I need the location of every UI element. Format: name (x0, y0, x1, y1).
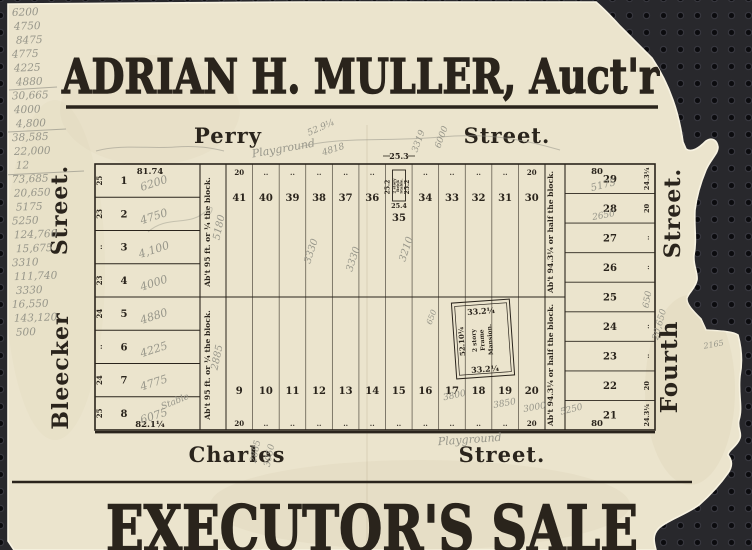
lot-width: .. (643, 265, 651, 270)
strip-label-right-upper: Ab't 94.3¼ or half the block. (546, 171, 555, 294)
strip-label-left-upper: Ab't 95 ft. or ¼ the block. (203, 177, 212, 288)
lot-number-24: 24 (603, 322, 617, 333)
frontage-tick: .. (423, 419, 428, 428)
lot-number-13: 13 (339, 386, 353, 397)
auctioneer-title: ADRIAN H. MULLER, Auct'r (61, 49, 659, 105)
lot-number-27: 27 (603, 233, 617, 244)
margin-figure: 143,120 (14, 311, 58, 325)
frontage-tick: .. (317, 419, 322, 428)
frontage-tick: .. (370, 168, 375, 177)
margin-figure: 6200 (12, 6, 39, 19)
frontage-tick: .. (476, 419, 481, 428)
frontage-tick: 20 (527, 419, 537, 428)
margin-figure: 8475 (16, 34, 43, 47)
lot-width: 24.3¼ (643, 167, 651, 190)
lot-number-10: 10 (259, 386, 273, 397)
frontage-tick: .. (343, 168, 348, 177)
lot-width: .. (643, 236, 651, 241)
pegboard-background: ADRIAN H. MULLER, Auct'r Perry Street. C… (0, 0, 752, 550)
frontage-tick: 20 (234, 168, 244, 177)
mansion-building-line2: Frame (478, 329, 486, 351)
frontage-tick: .. (290, 168, 295, 177)
lot-width: 23 (95, 209, 104, 219)
frontage-tick: .. (423, 168, 428, 177)
lot-number-25: 25 (603, 293, 617, 304)
lot-width: .. (643, 354, 651, 359)
lot-number-5: 5 (121, 309, 128, 320)
lot-number-33: 33 (445, 193, 459, 204)
lot-number-18: 18 (472, 386, 486, 397)
margin-figure: 5175 (16, 201, 43, 214)
lot-number-39: 39 (285, 193, 299, 204)
margin-figure: 22,000 (13, 145, 51, 158)
frontage-tick: .. (290, 419, 295, 428)
frontage-tick: .. (450, 419, 455, 428)
frontage-tick: .. (263, 168, 268, 177)
lot-number-38: 38 (312, 193, 326, 204)
frontage-tick: .. (263, 419, 268, 428)
lot-number-4: 4 (121, 276, 128, 287)
lot-width: 23 (95, 275, 104, 285)
lot-number-34: 34 (418, 193, 432, 204)
lot-number-15: 15 (392, 386, 406, 397)
street-perry: Perry (194, 123, 262, 148)
lot-number-19: 19 (498, 386, 512, 397)
lot-number-20: 20 (525, 386, 539, 397)
margin-figure: 124,760 (14, 228, 58, 242)
pencil-note: 2252 (706, 316, 729, 329)
lot-number-6: 6 (121, 342, 128, 353)
margin-figure: 15,675 (16, 242, 53, 255)
lot-number-37: 37 (339, 193, 353, 204)
lot-width: 25 (95, 176, 104, 186)
frontage-tick: .. (317, 168, 322, 177)
lot-number-36: 36 (365, 193, 379, 204)
frontage-tick: .. (503, 168, 508, 177)
margin-figure: 3310 (12, 256, 39, 269)
strip-label-right-lower: Ab't 94.3¼ or half the block. (546, 304, 555, 427)
lot-number-21: 21 (603, 411, 617, 422)
stable-dim-below: 25.4 (391, 202, 407, 210)
margin-figure: 12 (16, 159, 30, 171)
lot-number-16: 16 (418, 386, 432, 397)
stable-building-line3: Stable. (399, 178, 404, 194)
margin-figure: 111,740 (14, 270, 58, 284)
lot-number-14: 14 (365, 386, 379, 397)
margin-figure: 4000 (13, 103, 41, 116)
frontage-tick: 20 (527, 168, 537, 177)
frontage-tick: .. (503, 419, 508, 428)
frontage-tick: .. (396, 419, 401, 428)
lot-number-32: 32 (472, 193, 486, 204)
margin-figure: 4750 (13, 20, 41, 33)
lot-width: 24 (95, 309, 104, 319)
margin-figure: 16,550 (12, 298, 49, 311)
lot-number-11: 11 (285, 386, 299, 397)
lot-width: 20 (643, 203, 651, 213)
lot-number-9: 9 (236, 386, 243, 397)
frontage-tick: .. (370, 419, 375, 428)
lot-width: .. (643, 324, 651, 329)
street-bleecker: Bleecker (48, 312, 74, 429)
lot-width: 20 (643, 381, 651, 391)
frontage-tick: 20 (234, 419, 244, 428)
lot-number-12: 12 (312, 386, 326, 397)
margin-figure: 5250 (12, 215, 39, 228)
lot-width: .. (95, 344, 104, 349)
lot-number-1: 1 (121, 176, 128, 187)
lot-width: 25 (95, 408, 104, 418)
margin-figure: 30,665 (12, 89, 49, 102)
mansion-dim-bottom: 33.2¼ (471, 363, 500, 375)
lot-number-30: 30 (525, 193, 539, 204)
lot-number-40: 40 (259, 193, 273, 204)
lot-number-3: 3 (121, 243, 128, 254)
dim-right-bottom: 80 (591, 419, 603, 429)
lot-number-41: 41 (232, 193, 246, 204)
executors-sale-title: EXECUTOR'S SALE (106, 492, 638, 550)
broadside-scan: ADRIAN H. MULLER, Auct'r Perry Street. C… (0, 0, 752, 550)
frontage-tick: .. (450, 168, 455, 177)
frontage-tick: .. (343, 419, 348, 428)
lot-number-31: 31 (498, 193, 512, 204)
margin-figure: 4,800 (15, 117, 47, 130)
lot-width: 24 (95, 375, 104, 385)
margin-figure: 500 (16, 326, 37, 339)
margin-figure: 38,585 (12, 131, 49, 144)
margin-figure: 4775 (11, 48, 39, 61)
margin-figure: 4225 (13, 62, 41, 75)
lot-number-35: 35 (392, 213, 406, 224)
lot-number-23: 23 (603, 352, 617, 363)
street-fourth-suffix: Street. (660, 168, 686, 258)
margin-figure: 4880 (15, 76, 43, 89)
stable-side-right: 25.2 (404, 180, 411, 195)
stable-dim-above: 25.3 (389, 151, 409, 161)
lot-width: .. (95, 245, 104, 250)
dim-right-top: 80 (591, 167, 603, 177)
margin-figure: 3330 (16, 284, 43, 297)
lot-number-8: 8 (121, 409, 128, 420)
frontage-tick: .. (476, 168, 481, 177)
lot-number-22: 22 (603, 381, 617, 392)
lot-number-7: 7 (121, 376, 128, 387)
lot-number-2: 2 (121, 209, 128, 220)
lot-number-26: 26 (603, 263, 617, 274)
margin-figure: 20,650 (13, 186, 51, 199)
lot-width: 24.3¼ (643, 404, 651, 427)
